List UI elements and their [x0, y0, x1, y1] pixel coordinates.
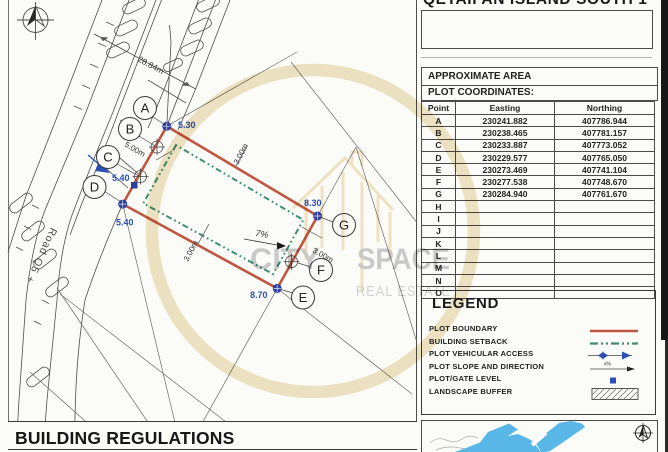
svg-text:G: G	[339, 218, 349, 233]
svg-text:Road Q5 +: Road Q5 +	[23, 226, 59, 286]
svg-text:B: B	[126, 122, 135, 137]
svg-text:D: D	[90, 180, 99, 195]
svg-text:3.00m: 3.00m	[182, 239, 201, 263]
svg-text:x%: x%	[604, 362, 612, 368]
svg-text:8.70: 8.70	[250, 290, 268, 300]
svg-text:8.30: 8.30	[304, 198, 322, 208]
svg-text:28.84m: 28.84m	[136, 54, 166, 76]
svg-text:5.00m: 5.00m	[123, 140, 147, 159]
svg-text:F: F	[317, 263, 325, 278]
svg-text:C: C	[103, 150, 112, 165]
svg-text:5.40: 5.40	[116, 218, 134, 228]
svg-text:A: A	[141, 101, 150, 116]
svg-text:3.00m: 3.00m	[232, 142, 251, 166]
svg-text:7%: 7%	[255, 228, 269, 240]
svg-text:5.40: 5.40	[112, 173, 130, 183]
svg-text:E: E	[299, 290, 308, 305]
svg-text:5.30: 5.30	[178, 120, 196, 130]
